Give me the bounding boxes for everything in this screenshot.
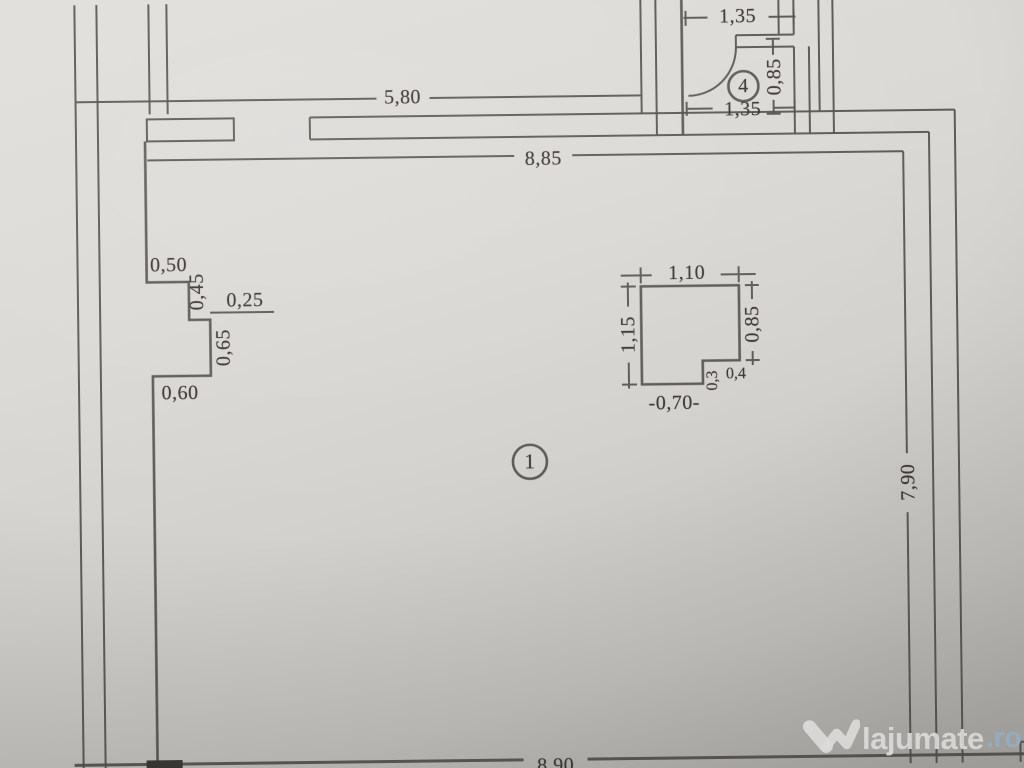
watermark: lajumate .ro (802, 712, 1021, 764)
dim-top-wall: 5,80 (384, 87, 421, 107)
right-outer-wall (929, 110, 963, 768)
watermark-brand: lajumate (862, 723, 984, 754)
dim-room4-side: 0,85 (764, 58, 784, 95)
mid-top-wall (640, 0, 657, 135)
dim-column-notch-w: 0,4 (726, 366, 746, 382)
floor-plan-drawing: 5,80 8,85 7,90 8,90 1,35 1,35 0,85 0,50 … (0, 0, 1024, 768)
room4-left-wall (681, 0, 683, 135)
dim-main-width: 8,85 (525, 148, 562, 168)
dim-step-050: 0,50 (150, 255, 187, 275)
bottom-left-mark (147, 760, 183, 768)
dim-room4-top: 1,35 (719, 6, 756, 26)
room4-right-wall (818, 0, 834, 133)
left-wall-steps (145, 141, 216, 765)
top-wall-segment-a (147, 118, 234, 141)
floor-plan-linework (0, 0, 1024, 768)
lajumate-heart-logo (802, 715, 860, 761)
floor-plan-photo: 5,80 8,85 7,90 8,90 1,35 1,35 0,85 0,50 … (0, 0, 1024, 768)
dim-line-top-wall (77, 95, 642, 102)
dim-step-060: 0,60 (161, 383, 198, 403)
dim-column-notch-h: 0,3 (705, 370, 721, 390)
dim-column-top: 1,10 (668, 263, 705, 283)
dim-room4-bottom: 1,35 (724, 99, 761, 119)
dim-column-right: 0,85 (742, 305, 762, 342)
dim-bottom-width: 8,90 (537, 755, 574, 768)
room4-number: 4 (738, 76, 749, 96)
watermark-tld: .ro (986, 724, 1022, 753)
top-wall-segment-b (310, 110, 955, 140)
dim-step-045: 0,45 (187, 273, 207, 310)
dim-column-left: 1,15 (618, 316, 638, 353)
dim-main-height: 7,90 (898, 464, 918, 501)
dim-step-025: 0,25 (226, 290, 263, 310)
room1-number: 1 (524, 451, 535, 472)
left-outer-wall (74, 0, 106, 768)
dim-step-065: 0,65 (213, 329, 233, 366)
dim-column-bottom: -0,70- (648, 393, 700, 414)
dim-line-step-025 (210, 312, 274, 313)
room4-niche-divider (794, 46, 810, 133)
top-left-wall (148, 0, 167, 114)
dim-line-main-height (903, 151, 911, 768)
